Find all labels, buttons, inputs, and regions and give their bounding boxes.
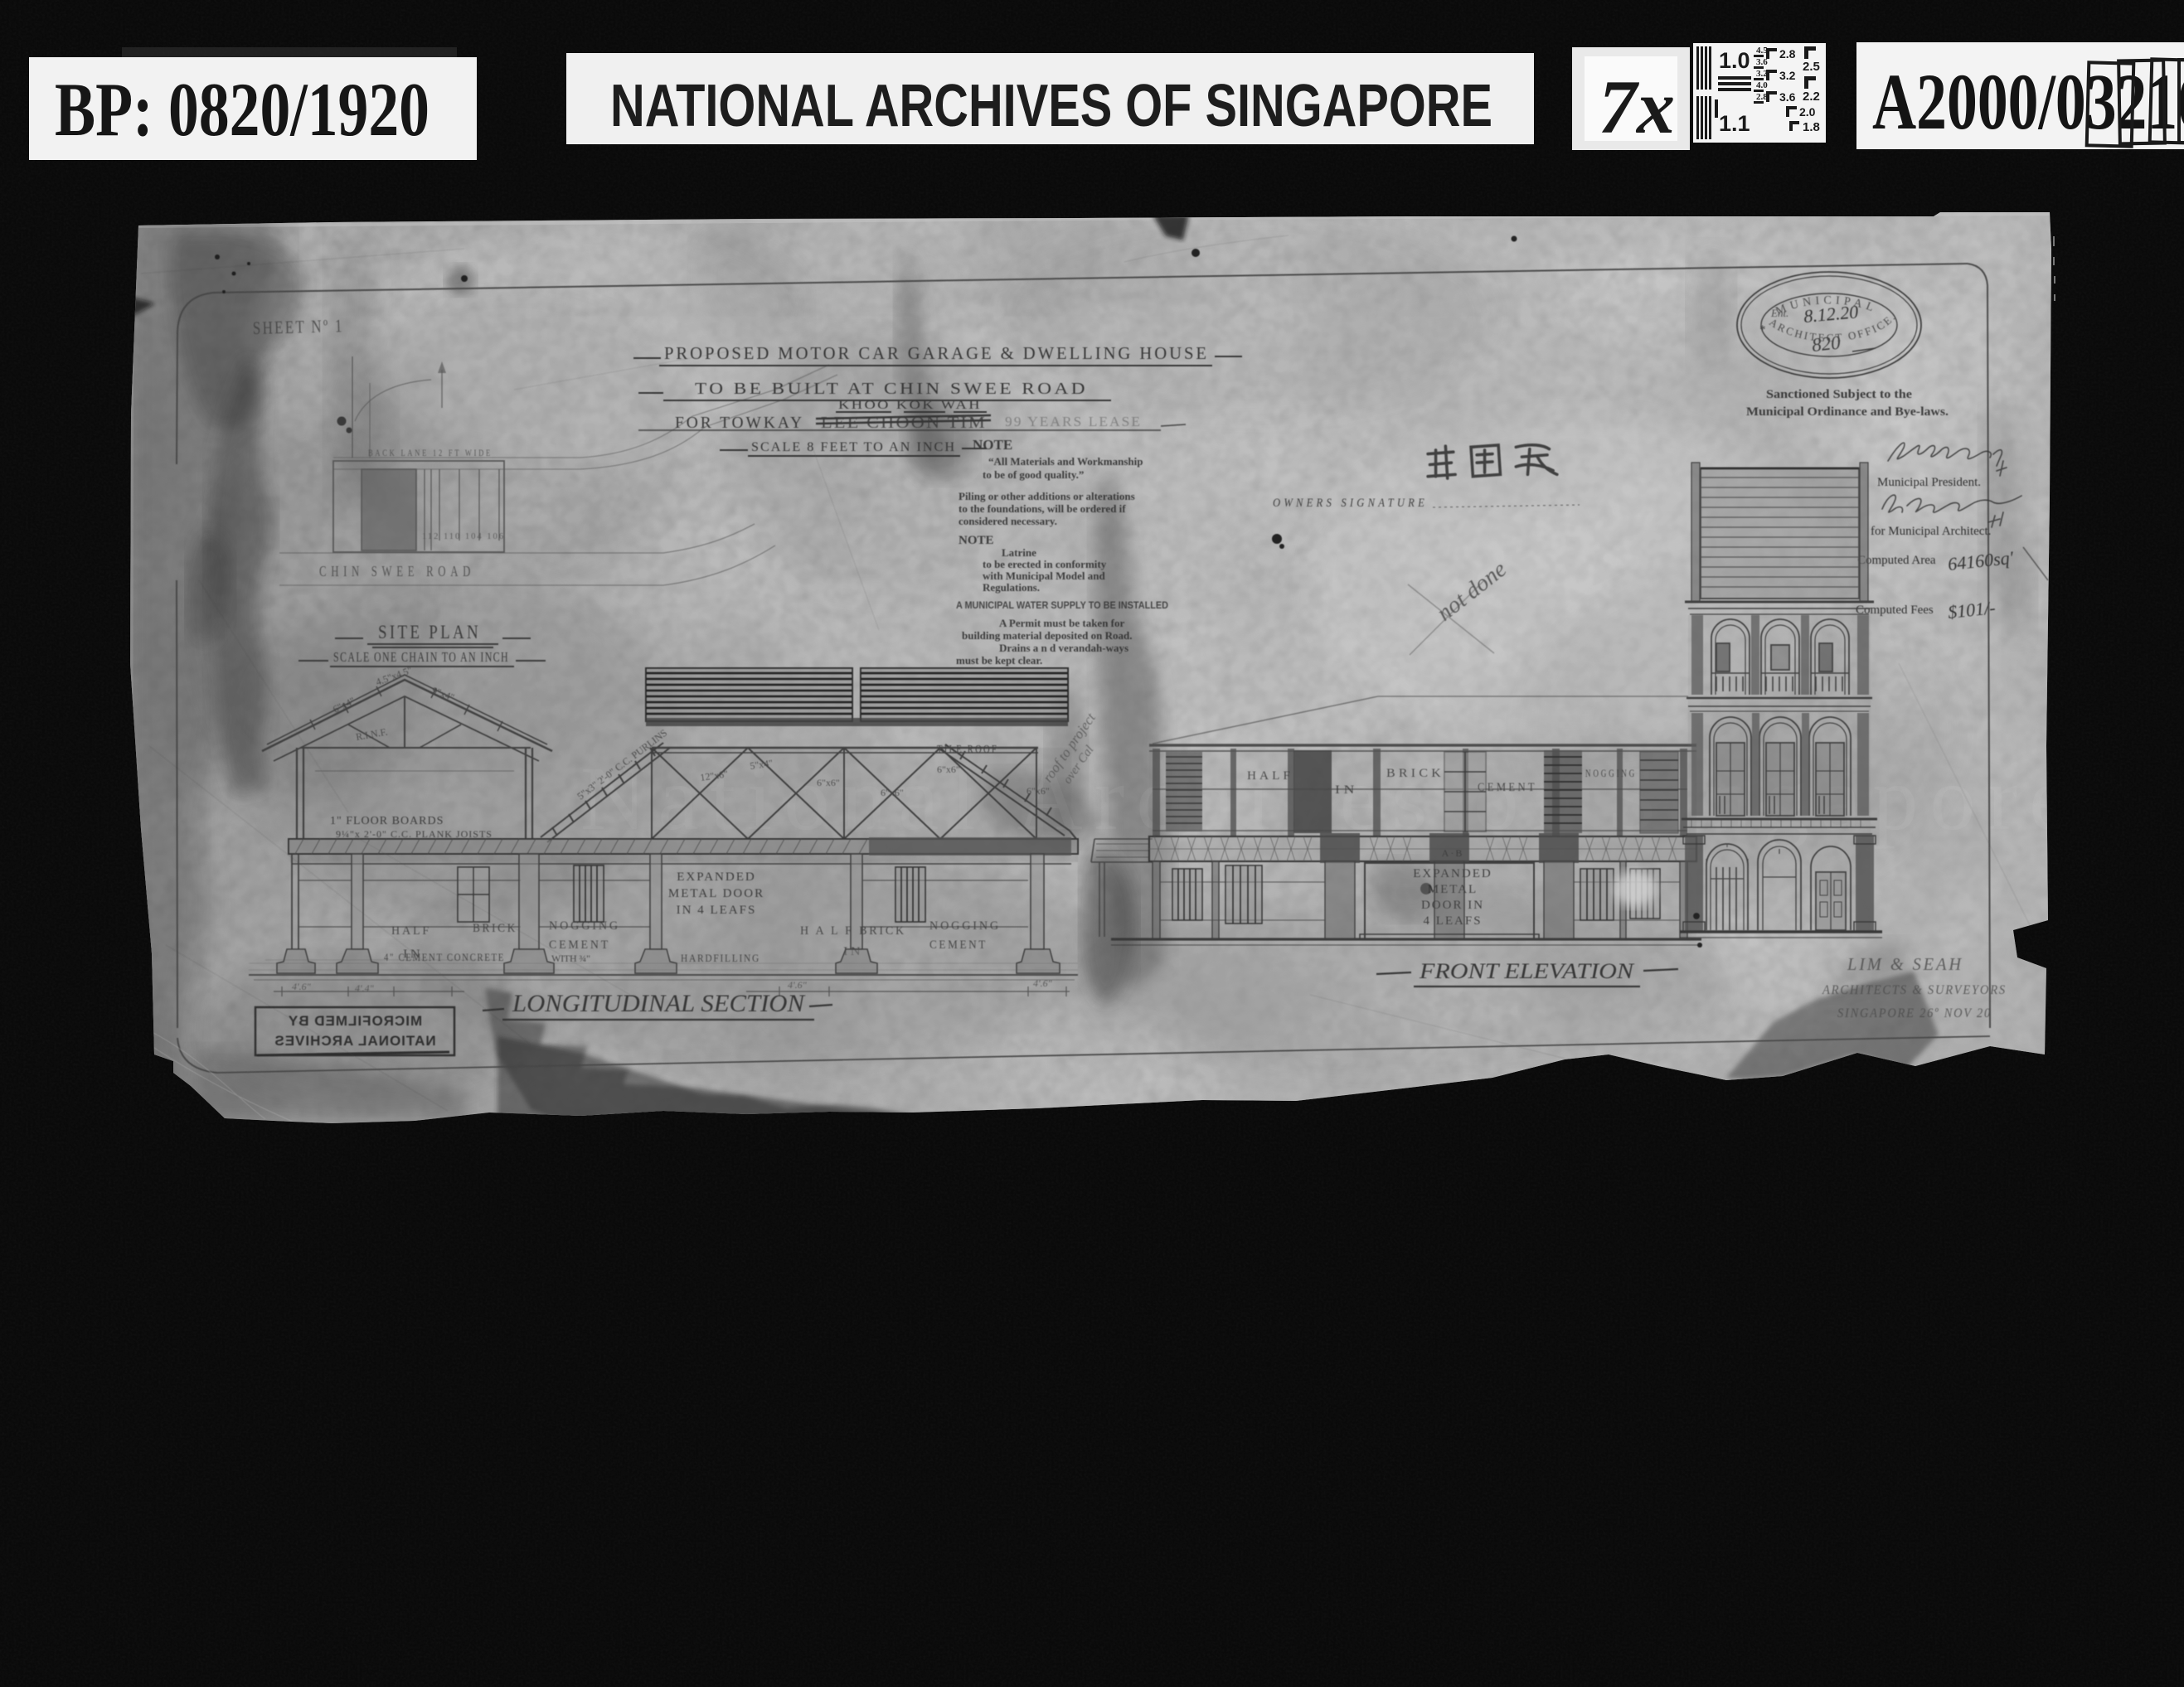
- svg-text:Piling or other additions or a: Piling or other additions or alterations: [959, 490, 1135, 502]
- svg-text:A MUNICIPAL WATER SUPPLY TO BE: A MUNICIPAL WATER SUPPLY TO BE INSTALLED: [956, 599, 1168, 611]
- svg-text:6"x6": 6"x6": [1026, 785, 1050, 797]
- svg-text:NOTE: NOTE: [973, 437, 1012, 453]
- svg-text:A·B: A·B: [1442, 847, 1464, 859]
- svg-text:BACK LANE 12 FT WIDE: BACK LANE 12 FT WIDE: [368, 447, 493, 458]
- svg-text:SCALE ONE CHAIN TO AN INCH: SCALE ONE CHAIN TO AN INCH: [333, 649, 509, 665]
- svg-text:METAL: METAL: [1428, 883, 1478, 896]
- svg-text:4'.6": 4'.6": [1033, 977, 1053, 989]
- svg-text:KHOO KOK WAH: KHOO KOK WAH: [838, 399, 982, 412]
- svg-text:CHIN SWEE ROAD: CHIN SWEE ROAD: [319, 563, 475, 579]
- svg-text:3.6: 3.6: [1779, 90, 1796, 104]
- svg-text:HARDFILLING: HARDFILLING: [681, 952, 760, 964]
- svg-text:BRICK: BRICK: [473, 922, 517, 935]
- svg-text:2.0: 2.0: [1799, 105, 1816, 119]
- svg-text:WITH ¾": WITH ¾": [551, 953, 591, 964]
- svg-text:1.0: 1.0: [1719, 48, 1750, 73]
- svg-text:2.5: 2.5: [1803, 60, 1820, 74]
- svg-text:820: 820: [1811, 332, 1842, 356]
- svg-text:METAL DOOR: METAL DOOR: [668, 887, 764, 900]
- svg-text:FOR TOWKAY: FOR TOWKAY: [675, 414, 804, 432]
- svg-text:Municipal Ordinance and Bye-la: Municipal Ordinance and Bye-laws.: [1746, 405, 1949, 419]
- svg-text:6"x6": 6"x6": [817, 777, 840, 788]
- svg-text:9¼"x 2'-0" C.C. PLANK JOISTS: 9¼"x 2'-0" C.C. PLANK JOISTS: [336, 828, 493, 840]
- svg-text:Ent.: Ent.: [1770, 307, 1788, 319]
- svg-text:to be of good quality.”: to be of good quality.”: [983, 468, 1084, 481]
- svg-text:H A L F BRICK: H A L F BRICK: [800, 924, 906, 938]
- svg-text:NOGGING: NOGGING: [1585, 767, 1637, 779]
- svg-text:112 110 104 106: 112 110 104 106: [422, 531, 505, 541]
- svg-text:4'.4": 4'.4": [355, 982, 375, 994]
- svg-text:LONGITUDINAL SECTION: LONGITUDINAL SECTION: [512, 990, 806, 1017]
- svg-text:BRICK: BRICK: [1386, 767, 1444, 780]
- svg-text:considered necessary.: considered necessary.: [959, 515, 1057, 527]
- svg-text:“All Materials and Workmanship: “All Materials and Workmanship: [988, 455, 1143, 468]
- svg-text:A Permit must be taken for: A Permit must be taken for: [999, 617, 1125, 629]
- svg-text:CEMENT: CEMENT: [929, 938, 988, 952]
- svg-text:must be kept clear.: must be kept clear.: [956, 654, 1042, 667]
- svg-text:4" CEMENT CONCRETE: 4" CEMENT CONCRETE: [384, 951, 505, 963]
- svg-text:EXPANDED: EXPANDED: [677, 870, 755, 884]
- svg-text:for Municipal Architect.: for Municipal Architect.: [1871, 525, 1991, 538]
- svg-text:CEMENT: CEMENT: [1478, 781, 1537, 794]
- svg-text:99 YEARS LEASE: 99 YEARS LEASE: [1005, 414, 1142, 429]
- svg-text:to be erected in conformity: to be erected in conformity: [983, 558, 1107, 570]
- svg-text:SHEET Nº 1: SHEET Nº 1: [252, 315, 344, 338]
- svg-text:SINGAPORE 26º NOV 20: SINGAPORE 26º NOV 20: [1837, 1006, 1992, 1020]
- svg-text:1" FLOOR BOARDS: 1" FLOOR BOARDS: [330, 815, 444, 827]
- svg-text:SITE PLAN: SITE PLAN: [378, 622, 481, 642]
- svg-text:2.8: 2.8: [1779, 47, 1796, 61]
- svg-text:4.0: 4.0: [1756, 80, 1768, 90]
- svg-text:6"x6": 6"x6": [881, 787, 904, 798]
- svg-text:NOGGING: NOGGING: [929, 919, 1001, 933]
- svg-text:2.2: 2.2: [1803, 90, 1820, 104]
- svg-text:FRONT ELEVATION: FRONT ELEVATION: [1419, 959, 1635, 983]
- svg-text:ARCHITECTS & SURVEYORS: ARCHITECTS & SURVEYORS: [1822, 983, 2007, 997]
- svg-text:*: *: [1759, 323, 1766, 337]
- svg-text:BP: 0820/1920: BP: 0820/1920: [55, 67, 430, 152]
- svg-text:building material deposited on: building material deposited on Road.: [962, 629, 1133, 642]
- svg-text:NATIONAL ARCHIVES: NATIONAL ARCHIVES: [274, 1033, 435, 1049]
- svg-text:4'.6": 4'.6": [788, 979, 808, 991]
- svg-text:4 LEAFS: 4 LEAFS: [1423, 914, 1482, 928]
- svg-text:Regulations.: Regulations.: [983, 581, 1040, 594]
- svg-text:Municipal President.: Municipal President.: [1877, 476, 1981, 489]
- svg-text:Sanctioned Subject to the: Sanctioned Subject to the: [1766, 388, 1912, 401]
- svg-text:4'.6": 4'.6": [292, 981, 312, 992]
- svg-text:IN 4 LEAFS: IN 4 LEAFS: [677, 904, 757, 917]
- svg-text:with Municipal Model and: with Municipal Model and: [983, 570, 1105, 582]
- svg-text:PROPOSED MOTOR CAR GARAGE: PROPOSED MOTOR CAR GARAGE & DWELLING HOU…: [664, 343, 1209, 363]
- svg-text:IN: IN: [1335, 783, 1358, 797]
- svg-text:CEMENT: CEMENT: [549, 938, 610, 952]
- svg-text:6"x6": 6"x6": [937, 764, 960, 775]
- svg-text:TILE ROOF: TILE ROOF: [937, 744, 998, 756]
- svg-text:DOOR IN: DOOR IN: [1421, 899, 1484, 912]
- svg-text:1.8: 1.8: [1803, 120, 1820, 134]
- svg-text:Latrine: Latrine: [1002, 546, 1036, 559]
- svg-text:TO BE BUILT AT CHIN SWEE ROA: TO BE BUILT AT CHIN SWEE ROAD: [695, 380, 1088, 398]
- svg-text:HALF: HALF: [391, 924, 431, 938]
- svg-text:1.1: 1.1: [1719, 111, 1750, 136]
- svg-text:EXPANDED: EXPANDED: [1413, 867, 1492, 880]
- svg-text:Computed Area: Computed Area: [1857, 554, 1936, 567]
- svg-text:OWNERS SIGNATURE: OWNERS SIGNATURE: [1273, 497, 1428, 510]
- svg-text:SCALE 8 FEET TO AN INCH: SCALE 8 FEET TO AN INCH: [751, 440, 956, 454]
- svg-text:3.2: 3.2: [1779, 69, 1796, 82]
- svg-text:A2000/03216: A2000/03216: [1872, 57, 2184, 146]
- svg-text:LIM & SEAH: LIM & SEAH: [1847, 954, 1963, 974]
- svg-text:HALF: HALF: [1247, 769, 1293, 783]
- svg-text:Drains a n d verandah-ways: Drains a n d verandah-ways: [999, 642, 1128, 654]
- svg-text:to the foundations, will be or: to the foundations, will be ordered if: [959, 502, 1126, 515]
- svg-text:7x: 7x: [1599, 65, 1675, 149]
- svg-text:NOTE: NOTE: [959, 534, 994, 547]
- svg-text:NATIONAL ARCHIVES OF SINGAPORE: NATIONAL ARCHIVES OF SINGAPORE: [610, 73, 1492, 139]
- svg-text:MICROFILMED BY: MICROFILMED BY: [288, 1013, 422, 1029]
- svg-text:NOGGING: NOGGING: [549, 919, 620, 933]
